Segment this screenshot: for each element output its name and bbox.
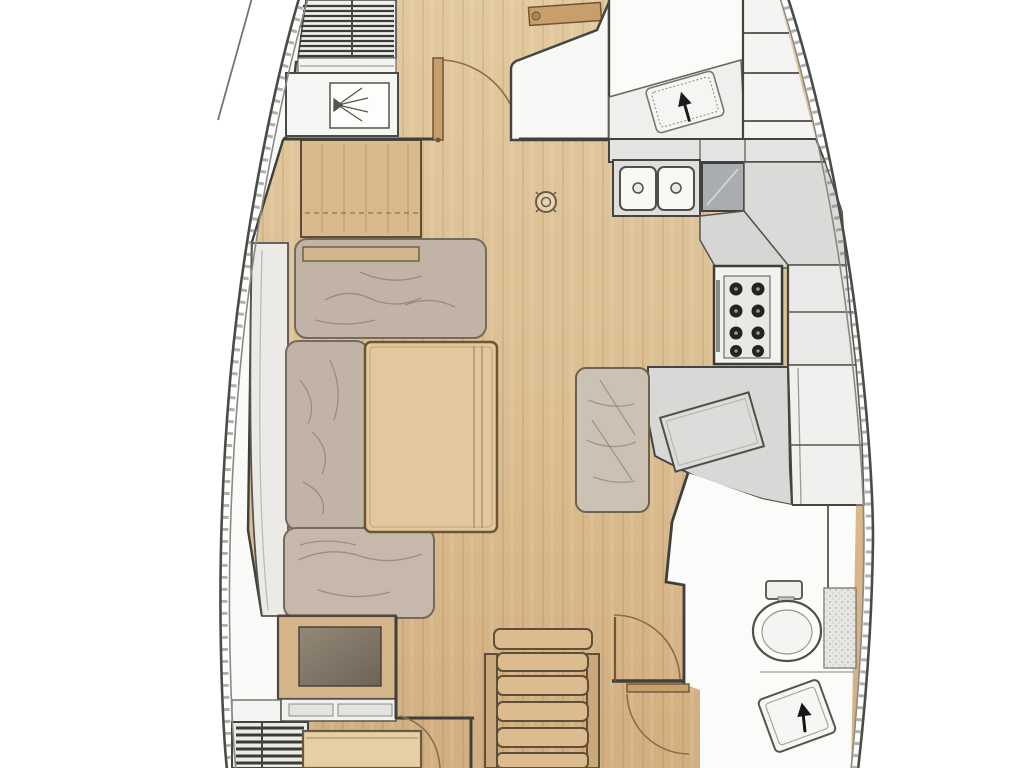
- floor-plan-image: Sailboat interior layout floor plan: [0, 0, 1024, 768]
- sink-drain-left: [633, 183, 643, 193]
- galley-double-sink: [613, 160, 700, 216]
- settee-hull-backrest: [250, 243, 288, 616]
- settee-side-cushion: [286, 341, 368, 530]
- nav-seat-cushion: [576, 368, 649, 512]
- settee-aft-chaise-cushion: [284, 528, 434, 618]
- port-aft-seat: [278, 616, 396, 699]
- galley-top-counter: [609, 139, 825, 162]
- starboard-bow-lockers: [743, 0, 816, 139]
- galley-stove: [714, 266, 782, 364]
- port-aft-berth-edge: [303, 731, 421, 768]
- bow-stay-line: [218, 0, 252, 120]
- yacht-floor-plan-svg: Sailboat interior layout floor plan: [0, 0, 1024, 768]
- settee-forward-bench-cushion: [295, 239, 486, 338]
- sink-drain-right: [671, 183, 681, 193]
- hanging-locker: [286, 73, 398, 136]
- deck-hatch-icon: [536, 192, 556, 212]
- forward-head-room: [609, 0, 745, 139]
- stove-handle: [716, 280, 720, 352]
- port-aft-shelf: [281, 699, 396, 721]
- galley-icebox: [702, 163, 744, 211]
- forward-berth-slats: [298, 0, 396, 73]
- galley-hull-lockers: [788, 265, 856, 365]
- saloon-sideboard: [301, 140, 421, 237]
- port-aft-shelf-left: [232, 700, 281, 722]
- port-aft-step-louvers: [232, 722, 308, 768]
- saloon-table: [365, 342, 497, 532]
